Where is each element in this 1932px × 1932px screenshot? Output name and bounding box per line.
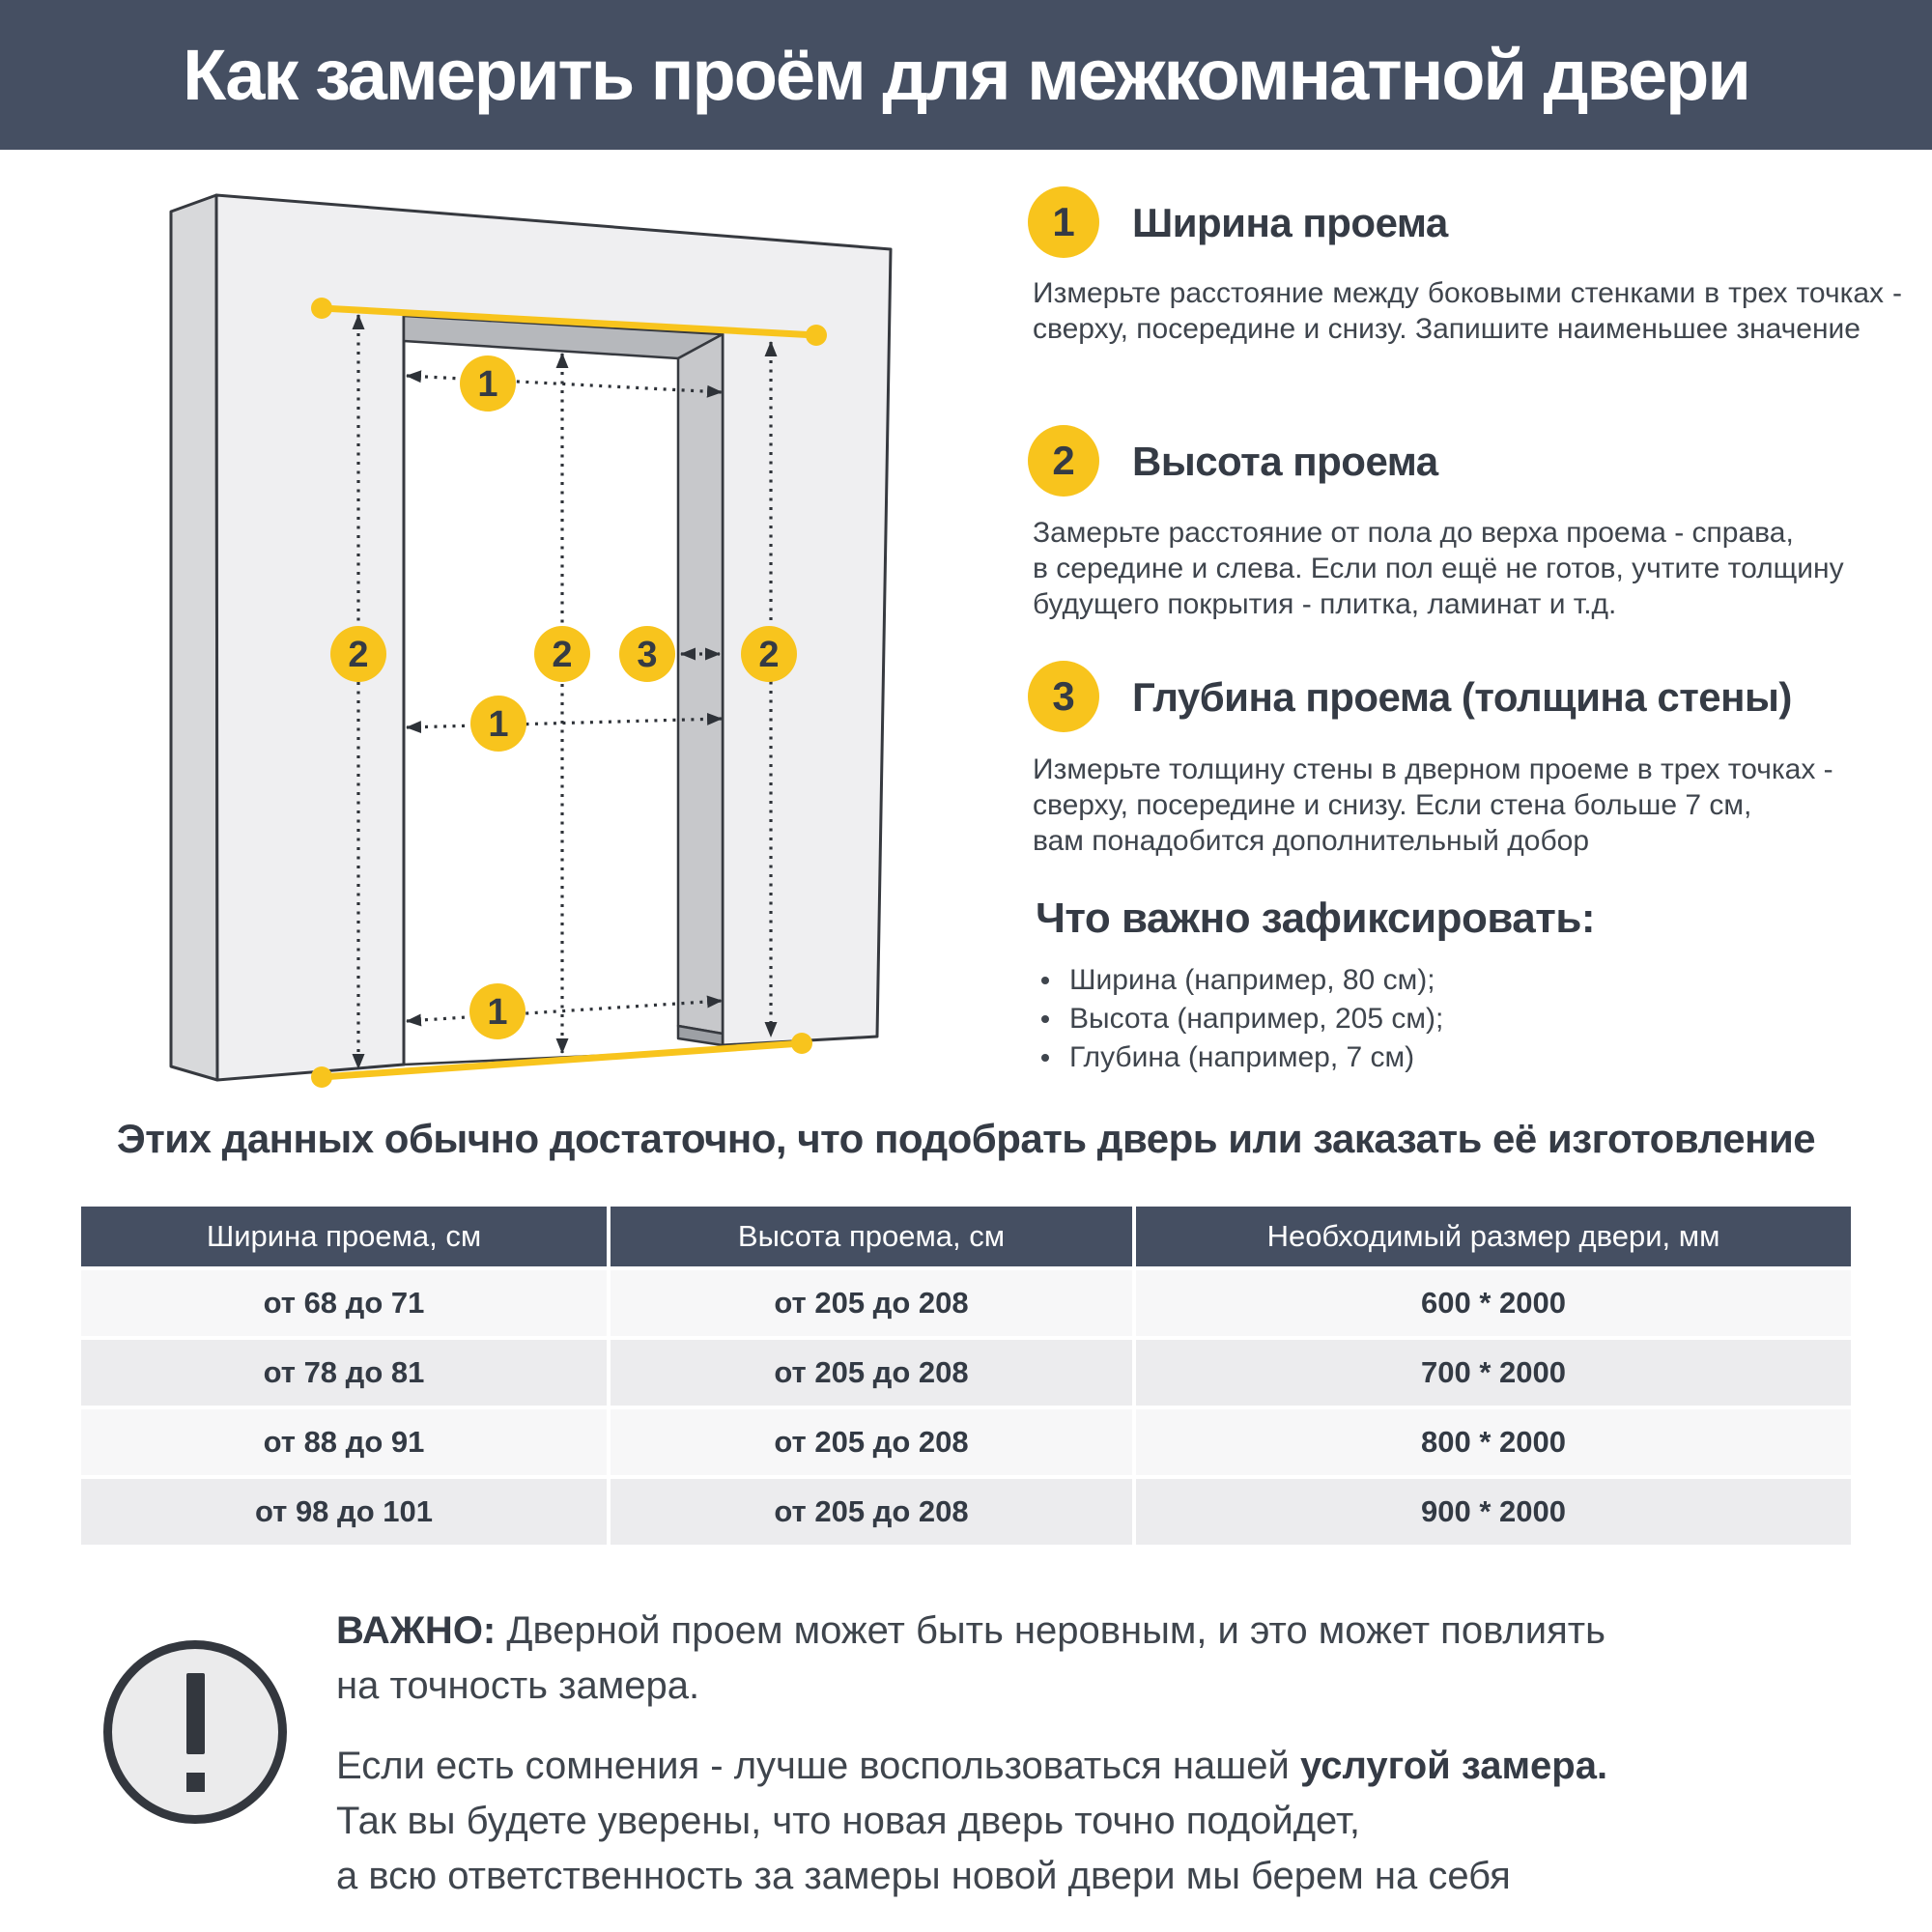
step-1-title: Ширина проема xyxy=(1132,200,1448,246)
wall-side-face xyxy=(171,195,217,1080)
width-badge: 1 xyxy=(469,983,526,1039)
width-badge: 1 xyxy=(470,696,526,752)
width-measure-bottom xyxy=(407,1001,722,1021)
service-text-bold: услугой замера. xyxy=(1300,1745,1607,1787)
table-cell: от 88 до 91 xyxy=(81,1409,607,1475)
table-cell: от 205 до 208 xyxy=(611,1479,1132,1545)
step-3-number: 3 xyxy=(1052,673,1074,720)
level-dot xyxy=(311,1066,332,1088)
height-badge-label: 2 xyxy=(348,635,368,675)
step-2-badge: 2 xyxy=(1028,425,1099,497)
exclamation-dot xyxy=(186,1773,205,1792)
infographic-page: Как замерить проём для межкомнатной двер… xyxy=(0,0,1932,1932)
step-3-title: Глубина проема (толщина стены) xyxy=(1132,674,1792,721)
checklist-item: Ширина (например, 80 см); xyxy=(1041,961,1443,1000)
step-3-description: Измерьте толщину стены в дверном проеме … xyxy=(1033,752,1902,859)
step-1-description: Измерьте расстояние между боковыми стенк… xyxy=(1033,275,1902,347)
checklist-item: Высота (например, 205 см); xyxy=(1041,1000,1443,1038)
important-label: ВАЖНО: xyxy=(336,1609,496,1652)
exclamation-bar xyxy=(186,1673,205,1754)
step-1-badge: 1 xyxy=(1028,186,1099,258)
bullet-icon xyxy=(1041,1015,1049,1023)
column-header-height: Высота проема, см xyxy=(611,1207,1132,1266)
height-badge: 2 xyxy=(741,626,797,682)
depth-badge-label: 3 xyxy=(637,635,657,675)
checklist-title: Что важно зафиксировать: xyxy=(1036,895,1595,943)
width-badge: 1 xyxy=(460,355,516,412)
step-3-badge: 3 xyxy=(1028,661,1099,732)
exclamation-icon xyxy=(103,1640,287,1824)
table-cell: 800 * 2000 xyxy=(1136,1409,1851,1475)
table-cell: от 78 до 81 xyxy=(81,1340,607,1406)
width-measure-top xyxy=(407,376,722,392)
table-intro: Этих данных обычно достаточно, что подоб… xyxy=(0,1116,1932,1162)
depth-badge: 3 xyxy=(619,626,675,682)
table-cell: от 205 до 208 xyxy=(611,1409,1132,1475)
important-text: Дверной проем может быть неровным, и это… xyxy=(336,1609,1605,1707)
level-dot xyxy=(806,325,827,346)
checklist: Ширина (например, 80 см); Высота (наприм… xyxy=(1041,961,1443,1077)
table-cell: от 68 до 71 xyxy=(81,1270,607,1336)
checklist-item-label: Высота (например, 205 см); xyxy=(1069,1003,1443,1036)
height-badge-label: 2 xyxy=(758,635,779,675)
width-badge-label: 1 xyxy=(488,704,508,745)
table-cell: от 98 до 101 xyxy=(81,1479,607,1545)
table-cell: 700 * 2000 xyxy=(1136,1340,1851,1406)
checklist-item: Глубина (например, 7 см) xyxy=(1041,1038,1443,1077)
column-header-door-size: Необходимый размер двери, мм xyxy=(1136,1207,1851,1266)
width-badge-label: 1 xyxy=(487,992,507,1033)
step-1-number: 1 xyxy=(1052,199,1074,245)
level-dot xyxy=(791,1033,812,1054)
height-badge: 2 xyxy=(534,626,590,682)
width-badge-label: 1 xyxy=(477,364,497,405)
service-text-start: Если есть сомнения - лучше воспользовать… xyxy=(336,1745,1300,1787)
checklist-item-label: Глубина (например, 7 см) xyxy=(1069,1041,1414,1074)
bullet-icon xyxy=(1041,977,1049,984)
column-header-width: Ширина проема, см xyxy=(81,1207,607,1266)
table-cell: 900 * 2000 xyxy=(1136,1479,1851,1545)
step-2-description: Замерьте расстояние от пола до верха про… xyxy=(1033,515,1902,622)
height-badge: 2 xyxy=(330,626,386,682)
table-cell: от 205 до 208 xyxy=(611,1340,1132,1406)
table-cell: от 205 до 208 xyxy=(611,1270,1132,1336)
table-cell: 600 * 2000 xyxy=(1136,1270,1851,1336)
checklist-item-label: Ширина (например, 80 см); xyxy=(1069,964,1435,997)
step-2-title: Высота проема xyxy=(1132,439,1438,485)
door-sizes-table: Ширина проема, см Высота проема, см Необ… xyxy=(81,1207,1851,1545)
step-2-number: 2 xyxy=(1052,438,1074,484)
doorway-diagram: 1 1 1 2 2 3 2 xyxy=(0,0,1005,1101)
important-note: ВАЖНО: Дверной проем может быть неровным… xyxy=(336,1604,1605,1714)
measure-service-note: Если есть сомнения - лучше воспользовать… xyxy=(336,1739,1607,1904)
level-dot xyxy=(311,298,332,319)
height-badge-label: 2 xyxy=(552,635,572,675)
width-measure-middle xyxy=(407,719,722,727)
opening-right-reveal xyxy=(678,334,723,1034)
service-text-rest: Так вы будете уверены, что новая дверь т… xyxy=(336,1800,1511,1897)
bullet-icon xyxy=(1041,1054,1049,1062)
